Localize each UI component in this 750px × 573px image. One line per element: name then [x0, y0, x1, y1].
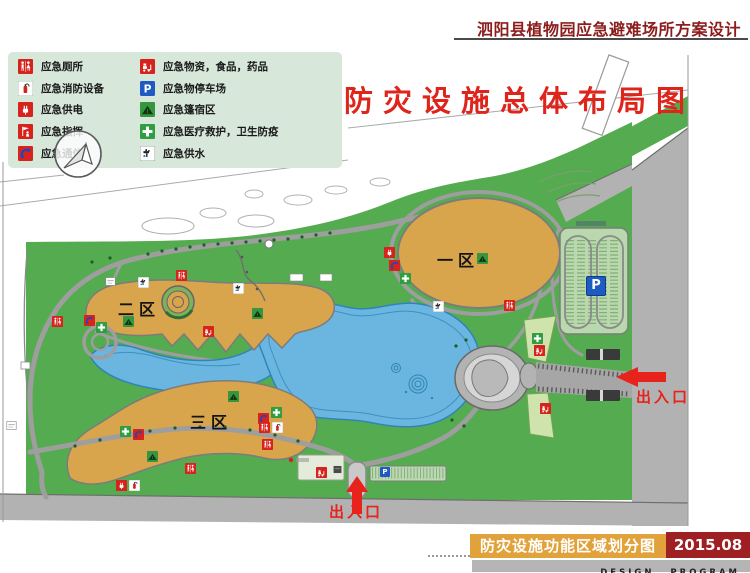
legend-item-power: 应急供电	[18, 100, 130, 120]
toilet-icon	[185, 459, 196, 470]
medical-icon	[532, 329, 543, 340]
district-label-2: 二区	[118, 296, 160, 320]
toilet-icon	[504, 296, 515, 307]
power-icon	[18, 102, 33, 117]
water-icon	[433, 297, 444, 308]
legend-item-fire: 应急消防设备	[18, 78, 130, 98]
svg-text:P: P	[144, 82, 152, 95]
legend-item-tent: 应急篷宿区	[140, 100, 340, 120]
legend-label: 应急物资，食品，药品	[163, 59, 268, 74]
footer-dotted-line	[428, 555, 470, 557]
phone-icon	[133, 425, 144, 436]
toilet-icon	[262, 435, 273, 446]
legend-label: 应急消防设备	[41, 81, 104, 96]
legend-item-toilet: 应急厕所	[18, 57, 130, 77]
toilet-icon	[18, 59, 33, 74]
page: 泗阳县植物园应急避难场所方案设计 防灾设施总体布局图 应急厕所 应急消防设备 应…	[0, 0, 750, 573]
legend-label: 应急厕所	[41, 59, 83, 74]
phone-icon	[84, 311, 95, 322]
sign-dark-icon	[332, 460, 343, 471]
district-label-1: 一区	[437, 247, 479, 271]
water-icon	[140, 146, 155, 161]
power-icon	[384, 243, 395, 254]
supplies-icon	[140, 59, 155, 74]
phone-icon	[18, 146, 33, 161]
legend-label: 应急物停车场	[163, 81, 226, 96]
sign-white-icon	[6, 416, 17, 427]
medical-icon	[400, 269, 411, 280]
legend-item-water: 应急供水	[140, 143, 340, 163]
medical-icon	[140, 124, 155, 139]
header-rule	[454, 38, 748, 40]
entrance-label-1: 出入口	[636, 386, 690, 407]
compass-north-arrow-icon	[52, 128, 104, 180]
fire-icon	[272, 418, 283, 429]
medical-icon	[120, 422, 131, 433]
supplies-icon	[534, 341, 545, 352]
mini-parking-sign: P	[380, 467, 390, 477]
footer-credit: DESIGN PROGRAM	[600, 568, 750, 573]
medical-icon	[271, 403, 282, 414]
footer-date-badge: 2015.08	[666, 532, 750, 558]
footer-credit-bar: DESIGN PROGRAM	[472, 560, 750, 572]
sign-white-icon	[105, 272, 116, 283]
legend-label: 应急供电	[41, 102, 83, 117]
tent-icon	[228, 387, 239, 398]
medical-icon	[96, 318, 107, 329]
footer-caption: 防灾设施功能区域划分图	[470, 534, 666, 558]
tent-icon	[252, 304, 263, 315]
legend-label: 应急篷宿区	[163, 102, 216, 117]
phone-icon	[389, 256, 400, 267]
page-title: 泗阳县植物园应急避难场所方案设计	[477, 16, 741, 40]
supplies-icon	[203, 322, 214, 333]
command-icon	[18, 124, 33, 139]
legend-label: 应急医疗救护，卫生防疫	[163, 124, 279, 139]
legend-item-medical: 应急医疗救护，卫生防疫	[140, 122, 340, 142]
tent-icon	[147, 447, 158, 458]
water-icon	[138, 273, 149, 284]
legend-column-right: 应急物资，食品，药品 P应急物停车场 应急篷宿区 应急医疗救护，卫生防疫 应急供…	[130, 52, 340, 168]
fire-icon	[18, 81, 33, 96]
toilet-icon	[176, 266, 187, 277]
water-icon	[233, 279, 244, 290]
entrance-label-2: 出入口	[329, 501, 383, 522]
fire-icon	[129, 476, 140, 487]
tent-icon	[140, 102, 155, 117]
supplies-icon	[316, 463, 327, 474]
legend-item-parking: P应急物停车场	[140, 78, 340, 98]
parking-sign: P	[586, 276, 606, 296]
district-label-3: 三区	[190, 409, 232, 433]
legend-item-supplies: 应急物资，食品，药品	[140, 57, 340, 77]
toilet-icon	[259, 418, 270, 429]
power-icon	[116, 476, 127, 487]
supplies-icon	[540, 399, 551, 410]
toilet-icon	[52, 312, 63, 323]
legend-label: 应急供水	[163, 146, 205, 161]
map-title: 防灾设施总体布局图	[344, 78, 695, 120]
parking-icon: P	[140, 81, 155, 96]
